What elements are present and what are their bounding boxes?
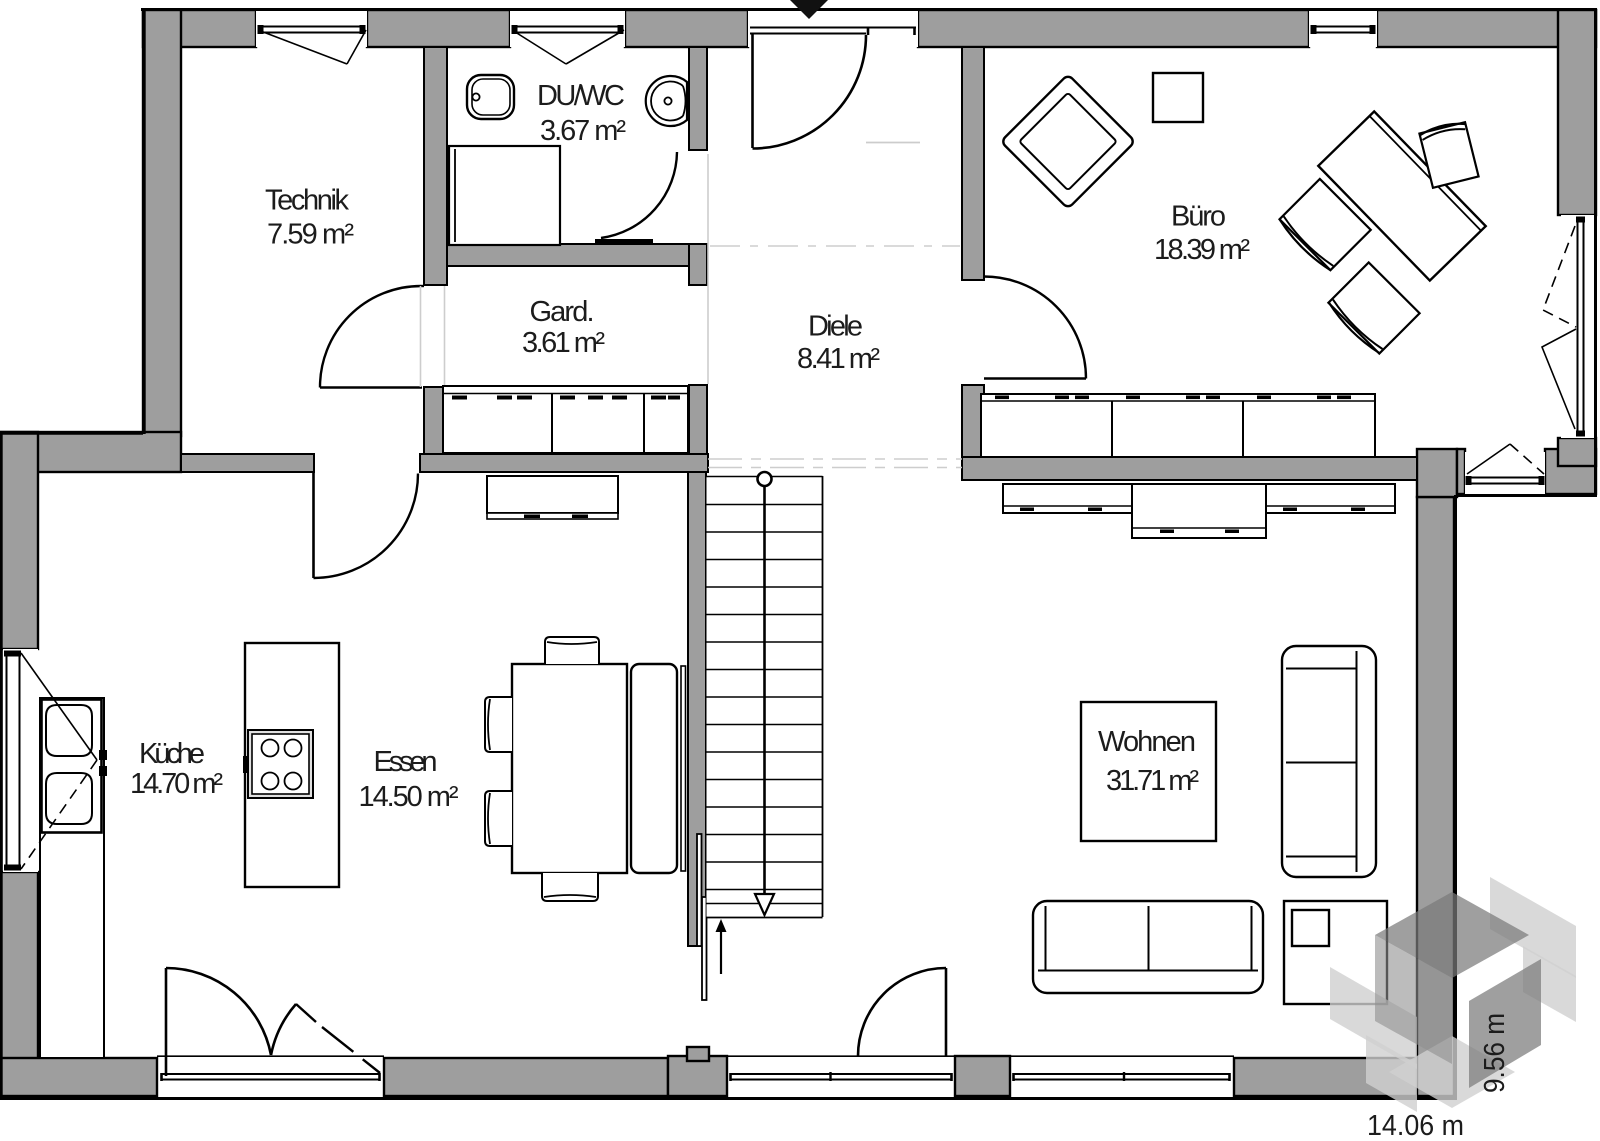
svg-text:3.61 m²: 3.61 m²	[522, 327, 605, 359]
svg-text:Büro: Büro	[1171, 201, 1226, 233]
svg-text:9.56 m: 9.56 m	[1479, 1013, 1511, 1093]
svg-text:Wohnen: Wohnen	[1098, 726, 1196, 758]
svg-text:Gard.: Gard.	[530, 296, 595, 328]
svg-text:DU/WC: DU/WC	[537, 80, 625, 112]
svg-text:14.06 m: 14.06 m	[1367, 1110, 1464, 1141]
svg-text:8.41 m²: 8.41 m²	[797, 343, 880, 375]
svg-text:Essen: Essen	[374, 746, 438, 778]
svg-text:18.39 m²: 18.39 m²	[1154, 234, 1250, 266]
svg-text:Technik: Technik	[265, 185, 350, 217]
svg-text:Küche: Küche	[139, 738, 205, 770]
svg-text:31.71 m²: 31.71 m²	[1106, 765, 1199, 797]
svg-text:14.50 m²: 14.50 m²	[359, 781, 459, 813]
svg-text:7.59 m²: 7.59 m²	[267, 219, 354, 251]
svg-text:14.70 m²: 14.70 m²	[130, 768, 223, 800]
svg-text:3.67 m²: 3.67 m²	[540, 115, 626, 147]
svg-text:Diele: Diele	[808, 311, 863, 343]
